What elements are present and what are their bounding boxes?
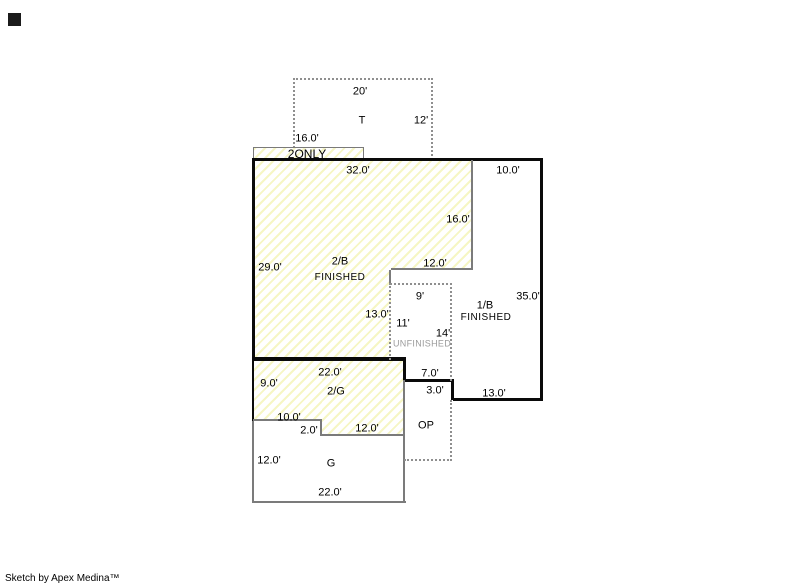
2b-dim-lower-right: 13.0': [365, 310, 389, 321]
2b-dim-top: 32.0': [346, 166, 370, 177]
g-dim-bottom: 22.0': [318, 488, 342, 499]
unfinished-left-edge: [389, 283, 391, 360]
outline-right: [540, 158, 543, 401]
porch-dim-top: 7.0': [421, 369, 438, 380]
strip-label: 2ONLY: [288, 148, 326, 160]
region-2b-main: [253, 160, 391, 360]
porch-bottom-edge: [404, 459, 452, 461]
t-dim-right: 12': [414, 116, 428, 127]
2b-room-label: 2/B: [332, 257, 349, 268]
outline-step-vertical: [451, 381, 454, 400]
g-room-label: G: [327, 459, 336, 470]
outline-left: [252, 158, 255, 361]
2g-room-label: 2/G: [327, 387, 345, 398]
2b-dim-left: 29.0': [258, 263, 282, 274]
corner-marker: [8, 13, 21, 26]
strip-dim-top: 16.0': [295, 134, 319, 145]
1b-dim-right: 35.0': [516, 292, 540, 303]
outline-2g-left: [252, 360, 254, 421]
porch-right-edge: [450, 400, 452, 461]
line-2g-right-lower: [403, 380, 405, 435]
porch-dim-side: 3.0': [426, 386, 443, 397]
unfinished-label: UNFINISHED: [393, 340, 451, 349]
1b-room-label: 1/B: [477, 301, 494, 312]
unfinished-dim-top: 9': [416, 292, 424, 303]
1b-dim-bottom: 13.0': [482, 389, 506, 400]
1b-dim-top: 10.0': [496, 166, 520, 177]
line-g-left: [252, 421, 254, 502]
2g-dim-step-top: 10.0': [277, 413, 301, 424]
t-room-label: T: [359, 116, 366, 127]
line-g-right: [403, 434, 405, 503]
line-g-bottom: [252, 501, 406, 503]
2g-dim-left: 9.0': [260, 379, 277, 390]
unfinished-dim-left: 11': [396, 319, 410, 330]
floorplan-sketch: 20' T 12' 16.0' 2ONLY 32.0' 29.0' 16.0' …: [0, 0, 800, 587]
outline-2g-right-upper: [403, 360, 406, 380]
2b-status-label: FINISHED: [315, 273, 366, 283]
2b-dim-step: 12.0': [423, 259, 447, 270]
unfinished-top-edge: [390, 283, 452, 285]
2g-dim-top: 22.0': [318, 368, 342, 379]
line-2b-hatch-right: [471, 160, 473, 270]
g-dim-left: 12.0': [257, 456, 281, 467]
2b-dim-right: 16.0': [446, 215, 470, 226]
unfinished-right-edge: [450, 283, 452, 381]
2g-dim-step-side: 2.0': [300, 426, 317, 437]
1b-status-label: FINISHED: [461, 313, 512, 323]
outline-2b-2g-divider: [253, 357, 406, 361]
2g-dim-bottom: 12.0': [355, 424, 379, 435]
porch-room-label: OP: [418, 421, 434, 432]
attribution-text: Sketch by Apex Medina™: [5, 573, 120, 584]
t-dim-top: 20': [353, 87, 367, 98]
